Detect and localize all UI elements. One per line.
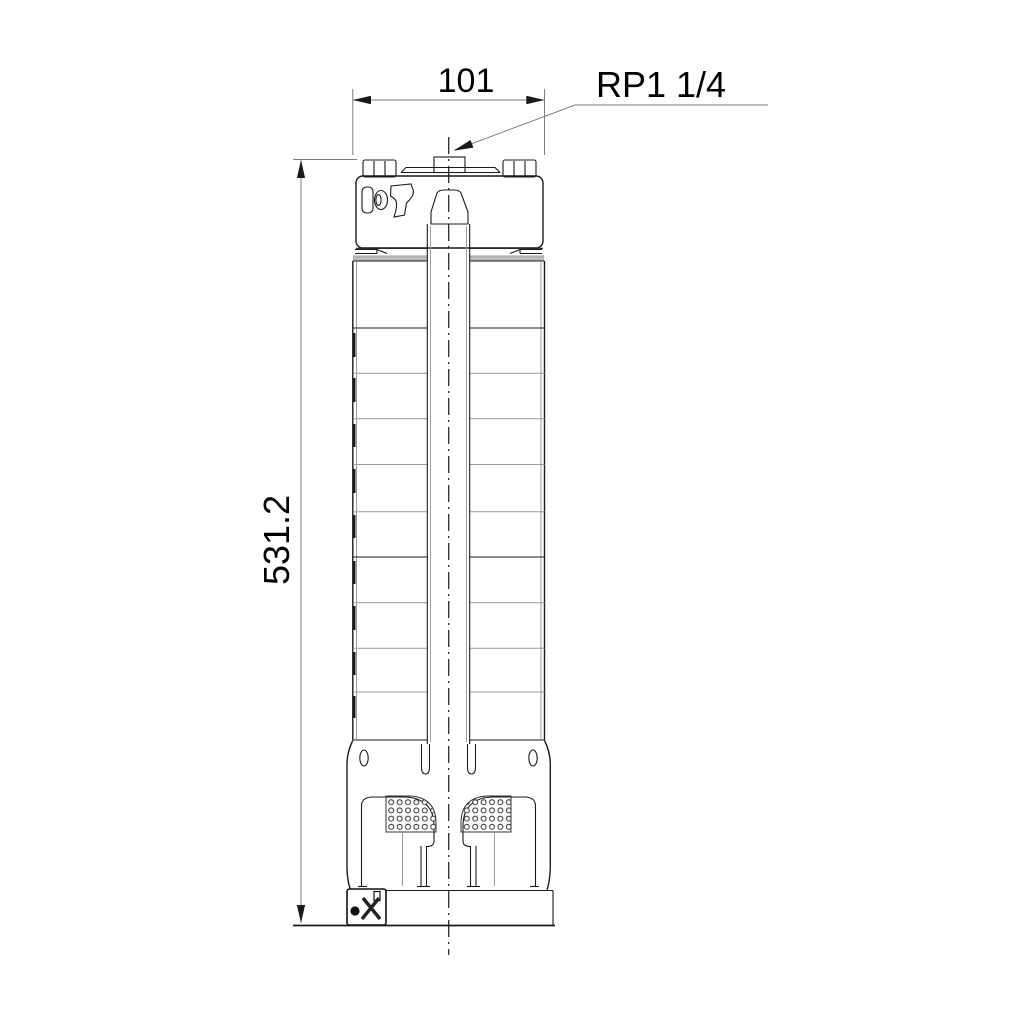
guard-slot-left — [422, 744, 430, 774]
connection-leader: RP1 1/4 — [454, 64, 769, 151]
manufacturer-logo — [347, 889, 386, 925]
dim-arrow-right — [526, 96, 544, 104]
housing-hole-right — [529, 750, 537, 766]
pump-technical-drawing: 101 531.2 RP1 1/4 — [0, 0, 1024, 1024]
bottom-cap — [386, 891, 553, 926]
stage-joints — [353, 328, 545, 740]
housing-left-edge — [347, 741, 353, 891]
strainer-perforations-left — [386, 796, 436, 832]
connection-label: RP1 1/4 — [596, 64, 726, 105]
suction-housing — [293, 741, 555, 926]
head-body — [356, 176, 543, 248]
bolt-boss-right — [503, 160, 536, 177]
strainer-boot-left — [358, 796, 436, 887]
drawing-canvas: 101 531.2 RP1 1/4 — [0, 0, 1024, 1024]
strainer-boot-right — [461, 796, 539, 887]
housing-right-edge — [545, 741, 551, 891]
width-dimension-label: 101 — [438, 62, 495, 100]
strainer-perforations-right — [461, 796, 511, 832]
height-dimension: 531.2 — [256, 160, 357, 924]
flange-strip — [401, 168, 500, 173]
bolt-boss-left — [363, 160, 396, 177]
height-dimension-label: 531.2 — [256, 495, 297, 585]
discharge-connection-stub — [434, 157, 465, 173]
leader-arrow — [454, 140, 474, 151]
cable-guard — [362, 184, 414, 217]
logo-dot — [350, 906, 359, 915]
dim-arrow-left — [353, 96, 371, 104]
guard-slot-right — [468, 744, 476, 774]
dim-arrow-top — [297, 160, 305, 178]
dim-arrow-bottom — [297, 905, 305, 923]
valve-housing — [431, 190, 468, 224]
housing-hole-left — [360, 750, 368, 766]
